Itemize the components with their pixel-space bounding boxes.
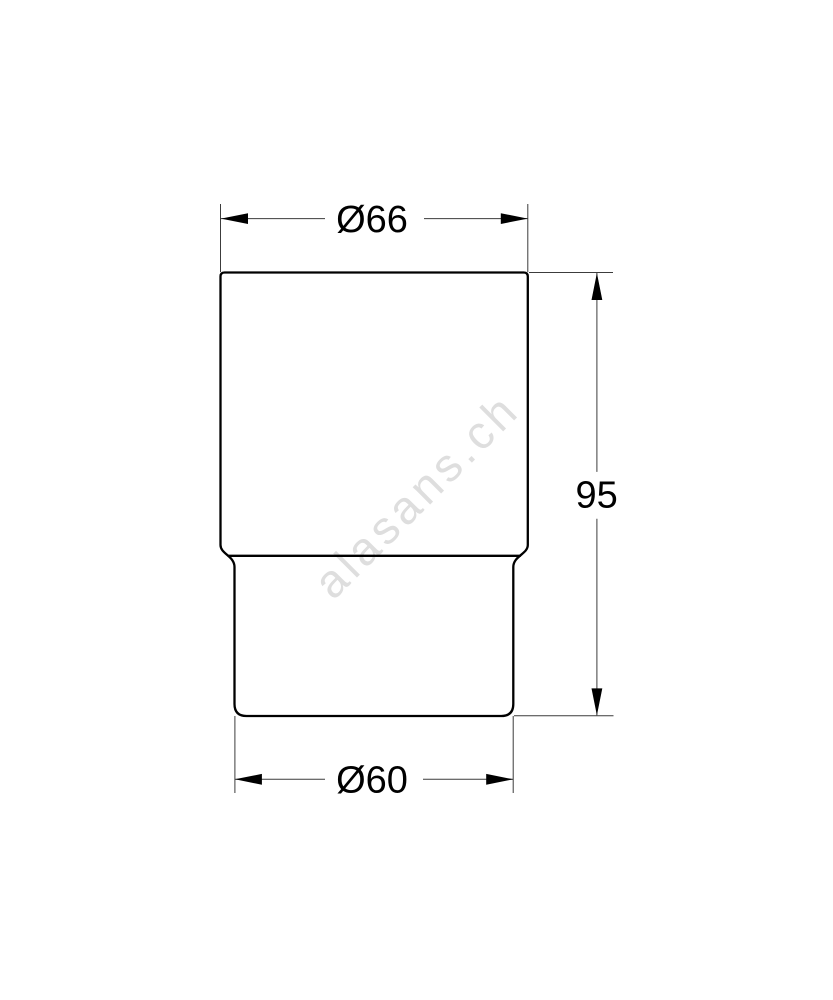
svg-text:Ø66: Ø66 <box>336 199 408 241</box>
svg-text:Ø60: Ø60 <box>336 760 408 802</box>
svg-text:95: 95 <box>576 475 618 517</box>
svg-text:alasans.ch: alasans.ch <box>304 383 530 609</box>
